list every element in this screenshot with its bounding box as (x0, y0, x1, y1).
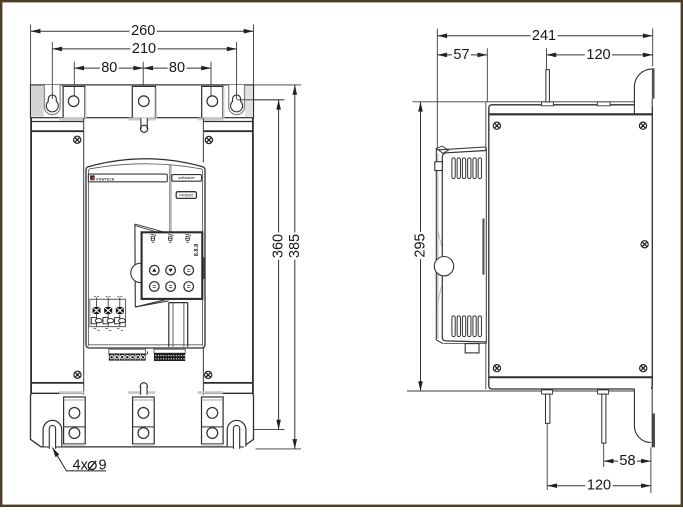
svg-text:9: 9 (99, 458, 107, 474)
svg-text:80: 80 (101, 60, 117, 76)
svg-text:57: 57 (453, 47, 469, 63)
svg-text:260: 260 (131, 23, 155, 39)
svg-text:385: 385 (287, 234, 303, 258)
svg-text:120: 120 (587, 478, 611, 494)
svg-text:8.8.8: 8.8.8 (194, 244, 200, 256)
svg-text:PR5000: PR5000 (179, 193, 193, 197)
svg-text:4x: 4x (73, 458, 89, 474)
svg-text:120: 120 (586, 47, 610, 63)
svg-text:360: 360 (271, 234, 287, 258)
svg-text:softstarter: softstarter (178, 176, 195, 180)
svg-text:210: 210 (132, 41, 156, 57)
svg-text:80: 80 (169, 60, 185, 76)
svg-text:295: 295 (413, 233, 429, 257)
svg-text:POWTECH: POWTECH (96, 178, 114, 182)
svg-text:58: 58 (619, 453, 635, 469)
svg-text:241: 241 (532, 28, 556, 44)
